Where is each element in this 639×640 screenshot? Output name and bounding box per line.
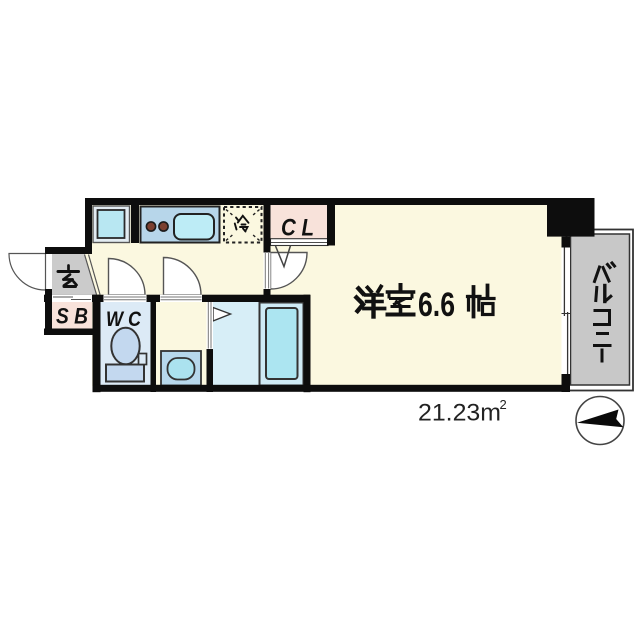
svg-text:W C: W C bbox=[106, 308, 142, 331]
svg-text:S B: S B bbox=[56, 304, 88, 329]
svg-text:C L: C L bbox=[281, 215, 314, 242]
svg-text:6.6: 6.6 bbox=[418, 286, 455, 324]
svg-text:2: 2 bbox=[500, 397, 507, 412]
svg-text:21.23m: 21.23m bbox=[418, 400, 501, 427]
